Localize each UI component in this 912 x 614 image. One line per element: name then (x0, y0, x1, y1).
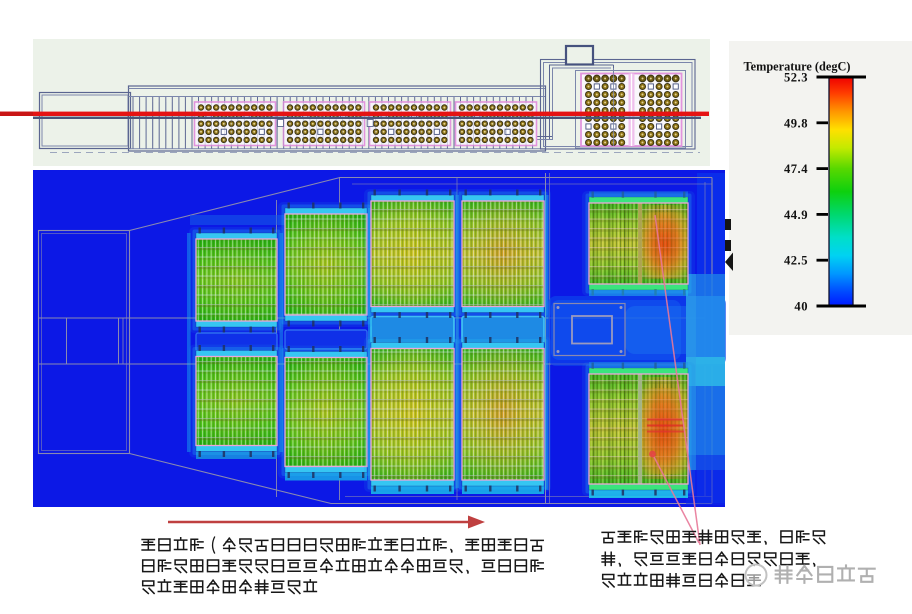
svg-text:47.4: 47.4 (784, 162, 808, 176)
svg-text:40: 40 (794, 300, 808, 314)
svg-text:49.8: 49.8 (784, 116, 808, 130)
svg-text:52.3: 52.3 (784, 71, 808, 85)
svg-text:44.9: 44.9 (784, 208, 808, 222)
svg-text:42.5: 42.5 (784, 254, 808, 268)
